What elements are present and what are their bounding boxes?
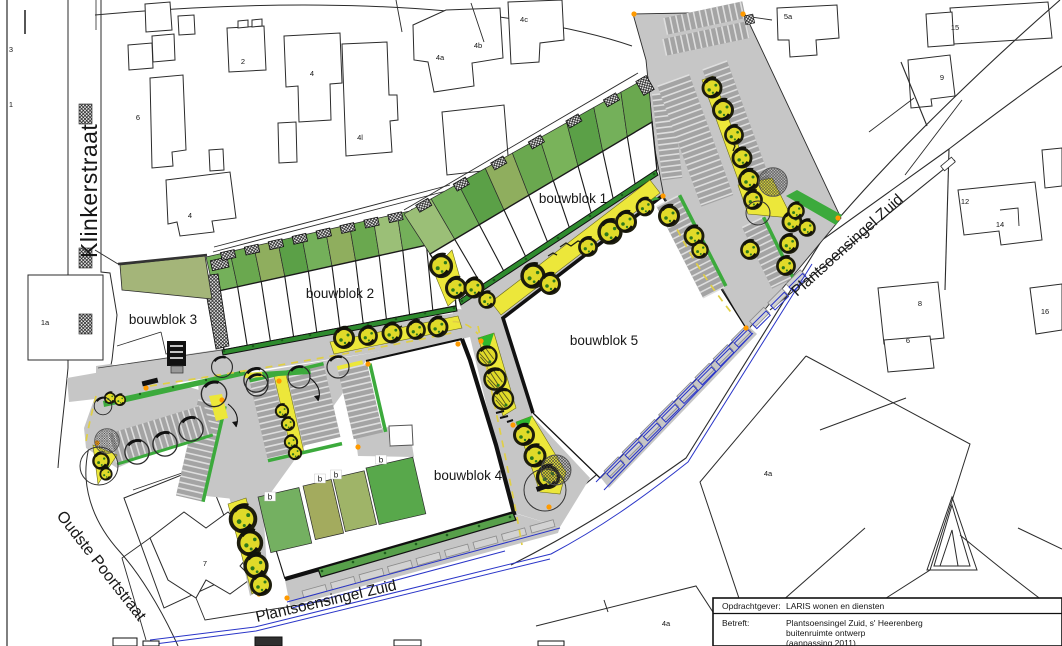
svg-text:buitenruimte ontwerp: buitenruimte ontwerp — [786, 628, 866, 638]
svg-text:bouwblok 5: bouwblok 5 — [570, 333, 638, 348]
svg-text:6: 6 — [906, 336, 910, 345]
svg-text:bouwblok 2: bouwblok 2 — [306, 286, 374, 301]
svg-text:b: b — [379, 456, 384, 465]
svg-text:Klinkerstraat: Klinkerstraat — [76, 124, 102, 258]
svg-text:15: 15 — [951, 23, 959, 32]
svg-text:16: 16 — [1041, 307, 1049, 316]
svg-text:14: 14 — [996, 220, 1004, 229]
svg-text:12: 12 — [961, 197, 969, 206]
svg-text:4: 4 — [188, 211, 192, 220]
svg-text:3: 3 — [9, 45, 13, 54]
svg-text:Plantsoensingel Zuid, s' Heere: Plantsoensingel Zuid, s' Heerenberg — [786, 618, 923, 628]
svg-text:4a: 4a — [764, 469, 773, 478]
svg-text:bouwblok 1: bouwblok 1 — [539, 191, 607, 206]
svg-text:4c: 4c — [520, 15, 528, 24]
svg-text:4b: 4b — [474, 41, 482, 50]
svg-text:4a: 4a — [436, 53, 445, 62]
svg-text:(aanpassing 2011): (aanpassing 2011) — [786, 638, 856, 646]
svg-text:bouwblok 4: bouwblok 4 — [434, 468, 503, 483]
svg-text:b: b — [334, 471, 339, 480]
svg-text:6: 6 — [136, 113, 140, 122]
svg-text:bouwblok 3: bouwblok 3 — [129, 312, 197, 327]
svg-text:b: b — [268, 493, 273, 502]
svg-text:4l: 4l — [357, 133, 363, 142]
svg-text:LARIS wonen en diensten: LARIS wonen en diensten — [786, 601, 885, 611]
svg-text:4: 4 — [310, 69, 314, 78]
svg-text:4a: 4a — [662, 619, 671, 628]
svg-text:9: 9 — [940, 73, 944, 82]
svg-text:Opdrachtgever:: Opdrachtgever: — [722, 601, 781, 611]
svg-text:2: 2 — [241, 57, 245, 66]
svg-text:Betreft:: Betreft: — [722, 618, 749, 628]
svg-text:7: 7 — [203, 559, 207, 568]
svg-text:b: b — [318, 475, 323, 484]
svg-text:1a: 1a — [41, 318, 50, 327]
svg-text:8: 8 — [918, 299, 922, 308]
svg-text:1: 1 — [9, 100, 13, 109]
svg-text:5a: 5a — [784, 12, 793, 21]
